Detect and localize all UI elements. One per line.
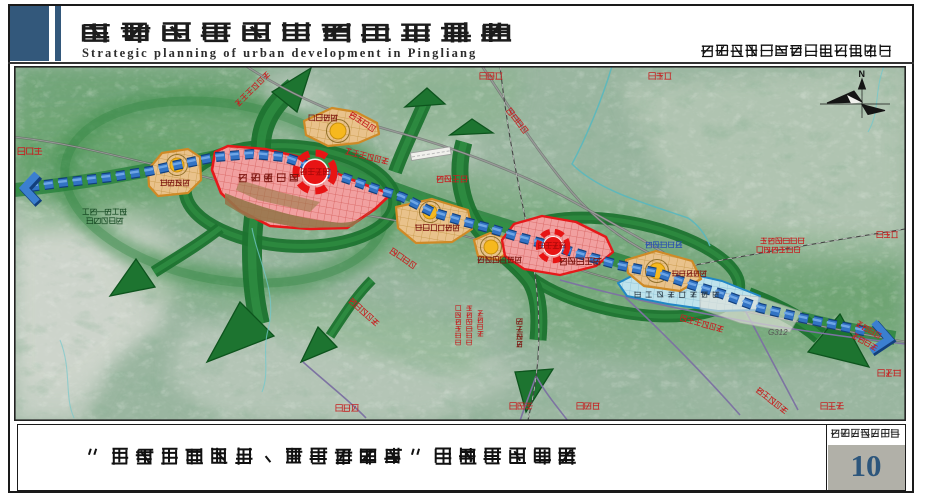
svg-text:G312: G312 (768, 328, 788, 337)
svg-text:N: N (859, 69, 866, 79)
